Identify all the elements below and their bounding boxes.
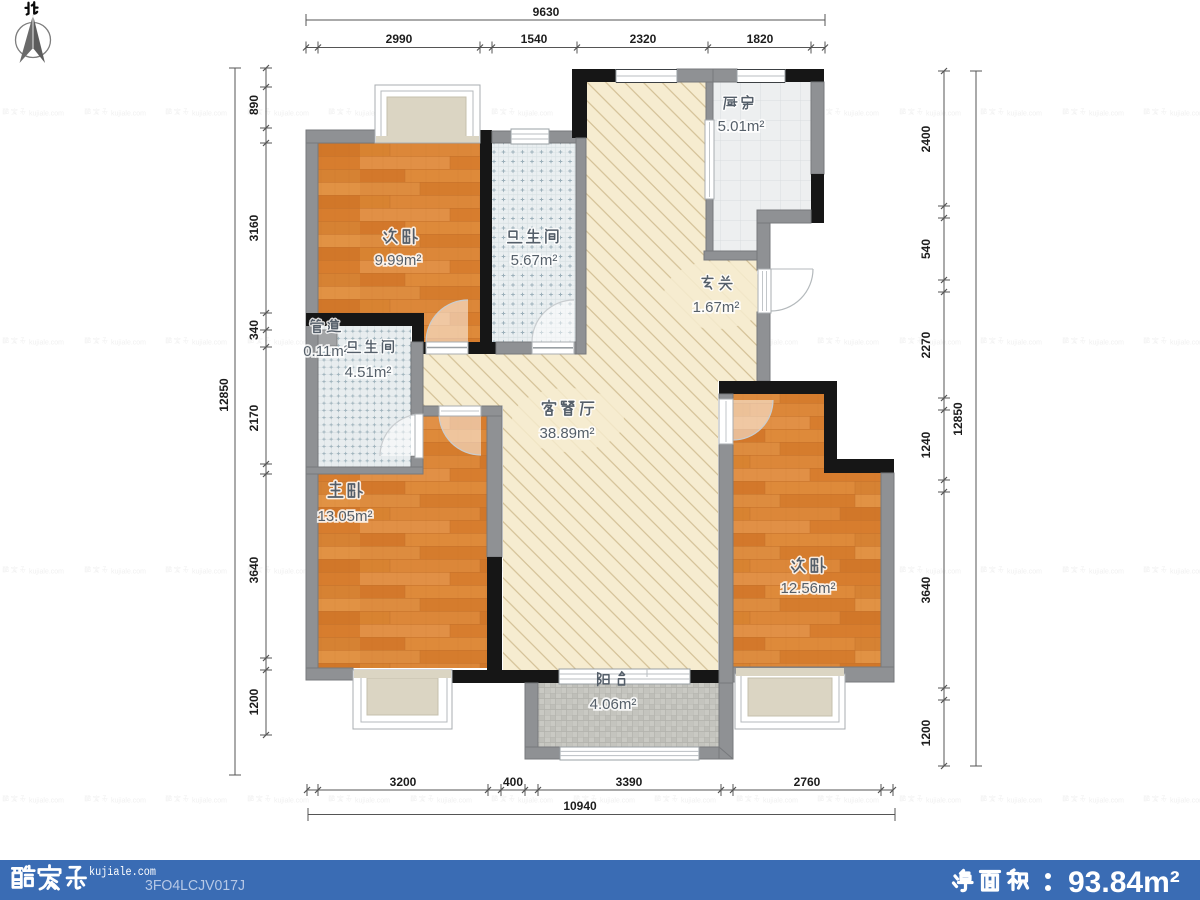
- svg-text:3FO4LCJV017J: 3FO4LCJV017J: [145, 878, 245, 894]
- svg-text:13.05m²: 13.05m²: [317, 508, 372, 525]
- svg-text:400: 400: [503, 775, 523, 789]
- svg-text:1820: 1820: [747, 32, 774, 46]
- svg-text:890: 890: [247, 95, 261, 115]
- svg-text:3390: 3390: [616, 775, 643, 789]
- svg-text:2270: 2270: [919, 331, 933, 358]
- svg-text:38.89m²: 38.89m²: [539, 425, 594, 442]
- svg-text:3640: 3640: [247, 556, 261, 583]
- svg-text:12850: 12850: [951, 402, 965, 436]
- svg-text:1200: 1200: [919, 719, 933, 746]
- svg-text:1540: 1540: [521, 32, 548, 46]
- svg-text:1240: 1240: [919, 431, 933, 458]
- svg-text:3640: 3640: [919, 576, 933, 603]
- svg-text:2990: 2990: [386, 32, 413, 46]
- svg-text:3160: 3160: [247, 214, 261, 241]
- svg-text:5.01m²: 5.01m²: [718, 118, 765, 135]
- svg-text:3200: 3200: [390, 775, 417, 789]
- svg-text:4.06m²: 4.06m²: [590, 696, 637, 713]
- svg-text:93.84m²: 93.84m²: [1068, 866, 1180, 899]
- svg-text:12.56m²: 12.56m²: [780, 580, 835, 597]
- svg-text:4.51m²: 4.51m²: [345, 364, 392, 381]
- svg-text:2760: 2760: [794, 775, 821, 789]
- svg-text:10940: 10940: [563, 799, 597, 813]
- svg-text:12850: 12850: [217, 378, 231, 412]
- svg-text:9630: 9630: [533, 5, 560, 19]
- svg-text:2400: 2400: [919, 125, 933, 152]
- svg-text:540: 540: [919, 239, 933, 259]
- svg-text:2320: 2320: [630, 32, 657, 46]
- svg-text:1200: 1200: [247, 688, 261, 715]
- svg-text:340: 340: [247, 320, 261, 340]
- svg-text:9.99m²: 9.99m²: [375, 252, 422, 269]
- svg-text:5.67m²: 5.67m²: [511, 252, 558, 269]
- svg-text:0.11m²: 0.11m²: [303, 343, 349, 360]
- svg-text:2170: 2170: [247, 404, 261, 431]
- svg-text:1.67m²: 1.67m²: [693, 299, 740, 316]
